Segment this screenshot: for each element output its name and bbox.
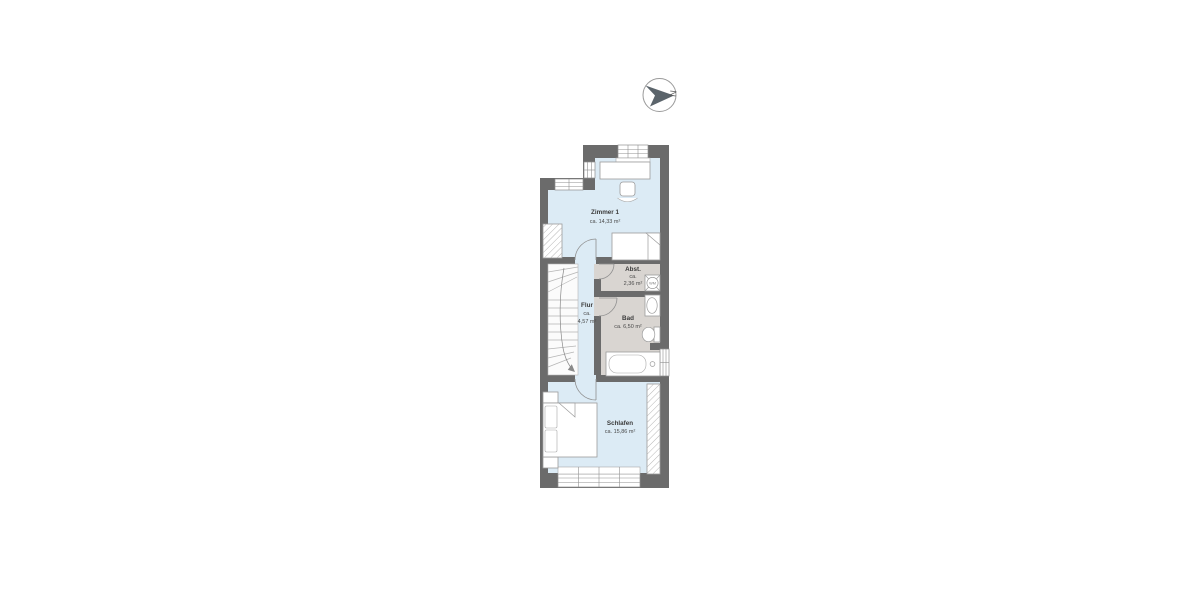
label-zimmer1-name: Zimmer 1 xyxy=(591,209,619,216)
window-top xyxy=(616,145,650,162)
window-bad xyxy=(660,349,669,376)
pillow xyxy=(545,430,557,452)
label-schlafen-area: ca. 15,86 m² xyxy=(605,429,636,435)
staircase xyxy=(548,264,578,375)
wardrobe-schlafen xyxy=(647,384,660,474)
label-flur-area: 4,57 m² xyxy=(578,319,597,325)
toilet xyxy=(642,327,660,342)
desk xyxy=(600,162,650,179)
opening-bad xyxy=(594,297,601,316)
nightstand-top xyxy=(543,392,558,403)
window-step-wall xyxy=(555,179,583,190)
wall-right xyxy=(660,145,669,488)
label-bad-name: Bad xyxy=(622,315,634,322)
north-indicator: N xyxy=(643,79,678,112)
washing-machine-label: WM xyxy=(649,282,656,286)
bathtub xyxy=(606,352,660,376)
opening-schlafen xyxy=(575,375,596,382)
floorplan-canvas: WM Zimmer 1 xyxy=(0,0,1200,600)
label-bad-area: ca. 6,50 m² xyxy=(614,324,642,330)
wardrobe-zimmer1 xyxy=(543,224,562,258)
label-abstellraum-area: 2,36 m² xyxy=(624,281,643,287)
label-flur-name: Flur xyxy=(581,302,593,309)
sink xyxy=(645,295,660,316)
bed-zimmer1 xyxy=(612,233,660,260)
label-flur-approx: ca. xyxy=(583,311,591,317)
label-zimmer1-area: ca. 14,33 m² xyxy=(590,219,621,225)
washing-machine: WM xyxy=(645,275,660,291)
floorplan-drawing: WM Zimmer 1 xyxy=(0,0,1200,600)
bathtub-drain xyxy=(650,362,655,367)
label-abstellraum-name: Abst. xyxy=(625,266,641,273)
nightstand-bottom xyxy=(543,457,558,468)
opening-zimmer1 xyxy=(575,257,596,264)
bed-schlafen xyxy=(543,403,597,457)
pillow xyxy=(545,406,557,428)
window-bottom xyxy=(558,467,640,487)
north-label: N xyxy=(668,90,679,98)
window-upper-left-vertical xyxy=(584,162,595,178)
window-sill-top xyxy=(616,158,650,162)
label-schlafen-name: Schlafen xyxy=(607,420,633,427)
label-abstellraum-approx: ca. xyxy=(629,274,637,280)
opening-abstellraum xyxy=(594,264,601,279)
desk-chair xyxy=(618,182,638,202)
